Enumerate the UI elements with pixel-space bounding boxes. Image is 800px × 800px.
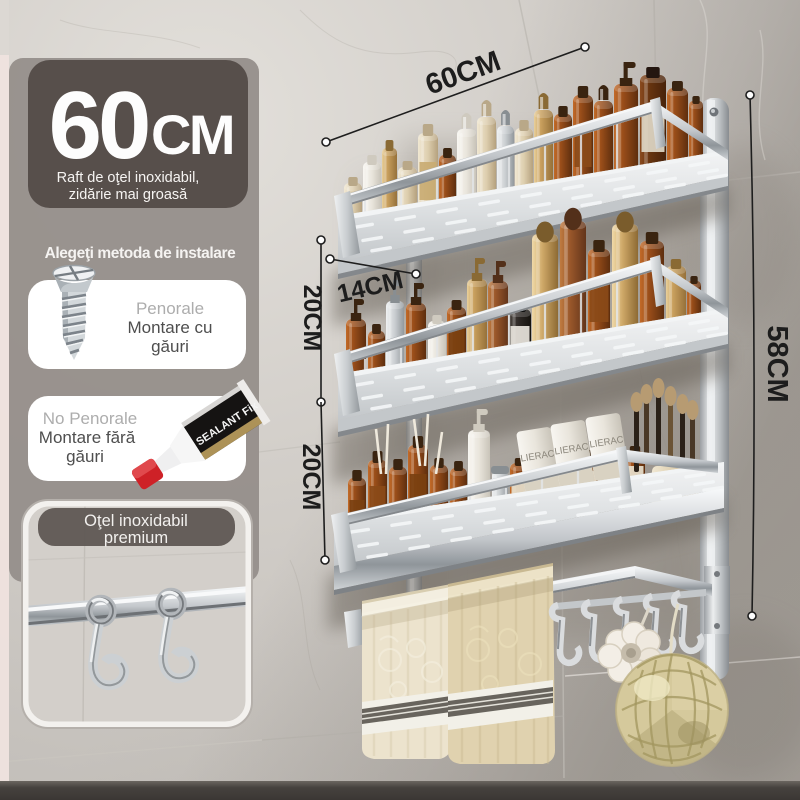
svg-text:găuri: găuri (66, 447, 104, 466)
svg-text:No Penorale: No Penorale (43, 409, 138, 428)
svg-text:Oţel inoxidabil: Oţel inoxidabil (84, 512, 188, 530)
svg-text:Penorale: Penorale (136, 299, 204, 318)
svg-text:20CM: 20CM (298, 285, 326, 352)
svg-text:Alegeţi metoda de instalare: Alegeţi metoda de instalare (45, 245, 237, 262)
svg-text:Montare fără: Montare fără (39, 428, 136, 447)
svg-text:58CM: 58CM (761, 325, 793, 402)
svg-text:găuri: găuri (151, 337, 189, 356)
svg-text:premium: premium (104, 529, 168, 547)
svg-text:Raft de oţel inoxidabil,: Raft de oţel inoxidabil, (57, 170, 200, 186)
svg-text:Montare cu: Montare cu (127, 318, 212, 337)
svg-text:CM: CM (151, 103, 233, 166)
svg-text:zidărie mai groasă: zidărie mai groasă (69, 187, 188, 203)
svg-text:60: 60 (49, 72, 148, 179)
svg-text:20CM: 20CM (297, 444, 325, 511)
